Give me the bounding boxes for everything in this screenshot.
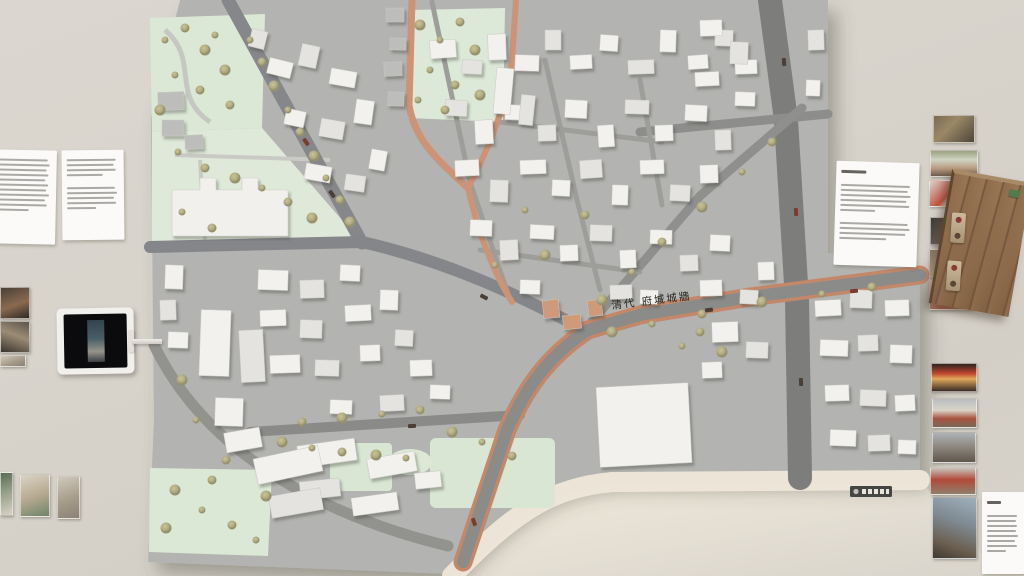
wall-mounted-tablet [56,307,134,374]
right-photo-8 [932,398,977,428]
right-photo-10 [930,467,976,495]
tablet-video [87,320,105,362]
right-photo-9 [932,432,976,463]
left-photo-1 [0,287,30,319]
bottom-left-photo-1 [0,472,13,516]
bottom-right-text-panel [982,492,1024,574]
right-photo-1 [933,115,975,143]
box-hinge-top [950,212,966,243]
left-photo-3 [0,355,26,367]
exhibition-wall: 清代 府城城牆 [0,0,1024,576]
right-text-panel [833,161,919,268]
left-photo-2 [0,321,30,353]
box-hinge-bottom [946,260,962,291]
left-text-panel-a [0,149,57,244]
bottom-left-photo-2 [20,474,50,517]
bottom-left-photo-3 [57,476,80,519]
tablet-screen [64,313,128,368]
tablet-mount-arm [132,339,162,344]
right-photo-7 [931,363,977,392]
maker-plaque [850,486,892,497]
city-scale-model: 清代 府城城牆 [0,0,1024,576]
left-text-panel-b [62,150,125,241]
right-photo-11 [932,497,977,559]
